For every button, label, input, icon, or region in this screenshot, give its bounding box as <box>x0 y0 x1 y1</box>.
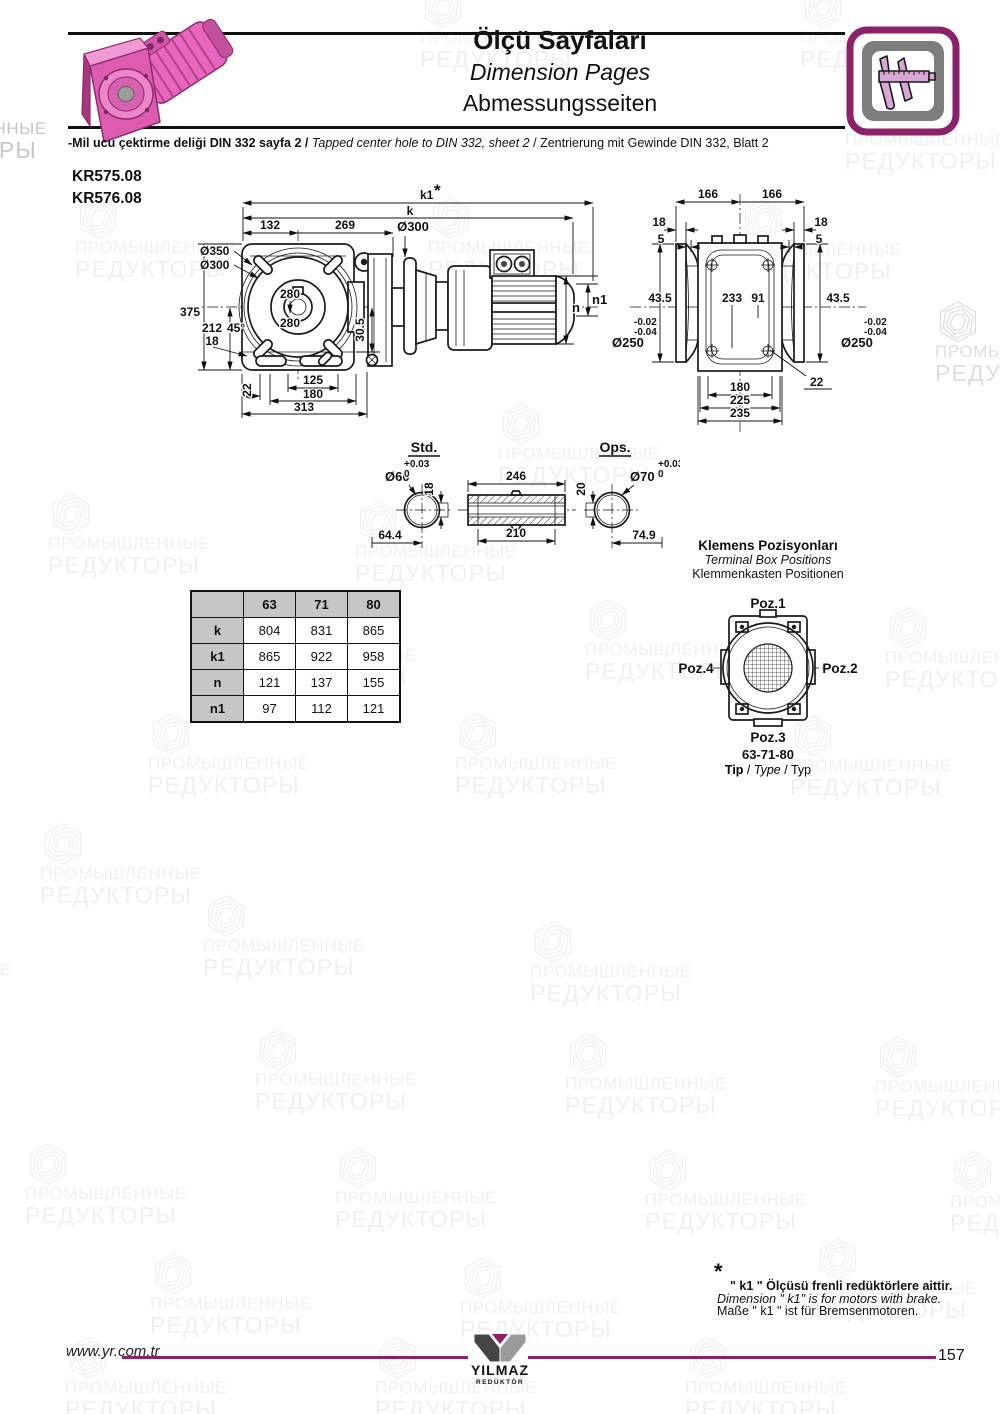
watermark: ПРОМЫШЛЕННЫЕРЕДУКТОРЫ <box>950 1150 1000 1236</box>
table-row: n1 97 112 121 <box>191 696 400 723</box>
watermark: ПРОМЫШЛЕННЫЕРЕДУКТОРЫ <box>885 606 1000 692</box>
label-poz2: Poz.2 <box>822 661 857 676</box>
dim-250-left: Ø250 <box>612 335 644 350</box>
table-corner-cell <box>191 591 244 618</box>
dim-n1: n1 <box>592 292 607 307</box>
watermark: ПРОМЫШЛЕННЫЕРЕДУКТОРЫ <box>455 712 617 798</box>
dim-125: 125 <box>303 373 323 387</box>
dim-225: 225 <box>730 393 750 407</box>
cell-k-80: 865 <box>348 618 401 644</box>
hexagon-swirl-icon <box>148 712 194 756</box>
footer-rule-left <box>122 1356 468 1359</box>
watermark: ПРОМЫШЛЕННЫЕРЕДУКТОРЫ <box>203 894 365 980</box>
terminal-title-german: Klemmenkasten Positionen <box>648 567 888 581</box>
cell-k1-63: 865 <box>244 644 296 670</box>
dim-22: 22 <box>240 383 254 397</box>
note-english: Tapped center hole to DIN 332, sheet 2 <box>312 136 530 150</box>
hexagon-swirl-icon <box>25 1142 71 1186</box>
title-german: Abmessungsseiten <box>360 88 760 118</box>
watermark: ПРОМЫШЛЕННЫЕРЕДУКТОРЫ <box>645 1148 807 1234</box>
watermark: ПРОМЫШЛЕННЫЕРЕДУКТОРЫ <box>0 77 47 163</box>
dim-132: 132 <box>260 218 280 232</box>
watermark: ПРОМЫШЛЕННЫЕРЕДУКТОРЫ <box>40 822 202 908</box>
label-poz1: Poz.1 <box>750 596 786 611</box>
hexagon-swirl-icon <box>885 606 931 650</box>
dim-250-right: Ø250 <box>841 335 873 350</box>
din-note: -Mil ucu çektirme deliği DIN 332 sayfa 2… <box>68 136 769 150</box>
watermark: ПРОМЫШЛЕННЫЕРЕДУКТОРЫ <box>25 1142 187 1228</box>
label-poz4: Poz.4 <box>678 661 714 676</box>
watermark: ПРОМЫШЛЕННЫЕРЕДУКТОРЫ <box>875 1035 1000 1121</box>
dim-210: 210 <box>506 526 526 540</box>
dim-280-top: 280 <box>280 287 300 301</box>
dim-180: 180 <box>303 387 323 401</box>
table-header-71: 71 <box>296 591 348 618</box>
table-row: n 121 137 155 <box>191 670 400 696</box>
dim-246: 246 <box>506 469 526 483</box>
dim-235: 235 <box>730 406 750 420</box>
dim-k1: k1 <box>420 188 434 202</box>
dim-233: 233 <box>722 291 742 305</box>
shaft-sections-drawing: Std. Ops. Ø60 +0.03 0 18 64.4 <box>350 430 680 555</box>
dimension-table: 63 71 80 k 804 831 865 k1 865 922 958 n … <box>190 590 401 723</box>
hexagon-swirl-icon <box>950 1150 996 1194</box>
table-header-row: 63 71 80 <box>191 591 400 618</box>
note-turkish: -Mil ucu çektirme deliği DIN 332 sayfa 2 <box>68 136 301 150</box>
dim-180-flange: 180 <box>730 380 750 394</box>
label-tip-line: Tip / Type / Typ <box>725 763 811 777</box>
hexagon-swirl-icon <box>203 894 249 938</box>
footer-rule-right <box>528 1356 936 1359</box>
yilmaz-logo: YILMAZ REDÜKTÖR <box>460 1330 540 1388</box>
dim-43-5-right: 43.5 <box>826 291 850 305</box>
footnote-turkish: " k1 " Ölçüsü frenli redüktörlere aittir… <box>730 1280 997 1293</box>
cell-n1-71: 112 <box>296 696 348 723</box>
watermark: ПРОМЫШЛЕННЫЕРЕДУКТОРЫ <box>148 712 310 798</box>
dim-64-4: 64.4 <box>378 528 402 542</box>
dim-5-right: 5 <box>816 232 823 246</box>
note-separator: / <box>305 136 312 150</box>
row-label-k: k <box>191 618 244 644</box>
hexagon-swirl-icon <box>875 1035 921 1079</box>
dim-300-top: Ø300 <box>397 219 429 234</box>
hexagon-swirl-icon <box>40 822 86 866</box>
watermark: ПРОМЫШЛЕННЫЕРЕДУКТОРЫ <box>150 1252 312 1338</box>
dim-5-left: 5 <box>658 232 665 246</box>
watermark: ПРОМЫШЛЕННЫЕРЕДУКТОРЫ <box>255 1028 417 1114</box>
note-german: Zentrierung mit Gewinde DIN 332, Blatt 2 <box>540 136 769 150</box>
dim-18-left: 18 <box>652 215 666 229</box>
hexagon-swirl-icon <box>800 0 846 30</box>
title-turkish: Ölçü Sayfaları <box>360 24 760 57</box>
dim-280-mid: 280 <box>280 316 300 330</box>
cell-n1-80: 121 <box>348 696 401 723</box>
dim-166-left: 166 <box>698 187 718 201</box>
dim-30-5: 30.5 <box>353 318 367 342</box>
gearmotor-photo <box>60 6 235 146</box>
footnote: * " k1 " Ölçüsü frenli redüktörlere aitt… <box>712 1266 997 1318</box>
terminal-box-drawing: Poz.1 Poz.2 Poz.4 Poz.3 63-71-80 Tip / T… <box>660 592 880 778</box>
dim-k: k <box>407 204 414 218</box>
hexagon-swirl-icon <box>455 712 501 756</box>
dim-22-flange: 22 <box>810 375 824 389</box>
page-title: Ölçü Sayfaları Dimension Pages Abmessung… <box>360 24 760 118</box>
hexagon-swirl-icon <box>255 1028 301 1072</box>
catalog-page: ПРОМЫШЛЕННЫЕРЕДУКТОРЫ ПРОМЫШЛЕННЫЕРЕДУКТ… <box>0 0 1000 1414</box>
terminal-box-titles: Klemens Pozisyonları Terminal Box Positi… <box>648 538 888 581</box>
dim-350: Ø350 <box>200 244 230 258</box>
dim-dia70: Ø70 <box>630 469 655 484</box>
dim-300-left: Ø300 <box>200 258 230 272</box>
dim-91: 91 <box>751 291 765 305</box>
hexagon-swirl-icon <box>585 598 631 642</box>
dim-18: 18 <box>205 334 219 348</box>
dim-166-right: 166 <box>762 187 782 201</box>
watermark: ПРОМЫШЛЕННЫЕРЕДУКТОРЫ <box>0 918 12 1004</box>
cell-n-63: 121 <box>244 670 296 696</box>
table-row: k1 865 922 958 <box>191 644 400 670</box>
dim-key-18: 18 <box>422 482 436 496</box>
page-number: 157 <box>938 1347 965 1365</box>
dim-45deg: 45° <box>227 321 245 335</box>
dim-key-20: 20 <box>574 482 588 496</box>
hexagon-swirl-icon <box>645 1148 691 1192</box>
cell-k1-71: 922 <box>296 644 348 670</box>
label-std: Std. <box>411 439 437 455</box>
dim-212: 212 <box>202 321 222 335</box>
dim-313: 313 <box>294 400 314 414</box>
hexagon-swirl-icon <box>335 1146 381 1190</box>
footnote-asterisk: * <box>714 1266 723 1279</box>
watermark: ПРОМЫШЛЕННЫЕРЕДУКТОРЫ <box>335 1146 497 1232</box>
label-sizes: 63-71-80 <box>742 747 794 762</box>
footnote-german: Maße " k1 " ist für Bremsenmotoren. <box>717 1305 997 1318</box>
label-ops: Ops. <box>599 439 630 455</box>
dim-18-right: 18 <box>814 215 828 229</box>
dim-tol-lo-std: 0 <box>404 469 410 480</box>
cell-n1-63: 97 <box>244 696 296 723</box>
row-label-n: n <box>191 670 244 696</box>
dim-n: n <box>572 300 580 315</box>
watermark: ПРОМЫШЛЕННЫЕРЕДУКТОРЫ <box>565 1032 727 1118</box>
row-label-k1: k1 <box>191 644 244 670</box>
table-header-80: 80 <box>348 591 401 618</box>
dim-375: 375 <box>180 305 200 319</box>
cell-k-63: 804 <box>244 618 296 644</box>
watermark: ПРОМЫШЛЕННЫЕРЕДУКТОРЫ <box>48 492 210 578</box>
cell-n-71: 137 <box>296 670 348 696</box>
terminal-title-english: Terminal Box Positions <box>648 553 888 567</box>
hexagon-swirl-icon <box>48 492 94 536</box>
hexagon-swirl-icon <box>565 1032 611 1076</box>
table-row: k 804 831 865 <box>191 618 400 644</box>
website-url: www.yr.com.tr <box>66 1343 160 1360</box>
dim-269: 269 <box>335 218 355 232</box>
cell-k-71: 831 <box>296 618 348 644</box>
label-poz3: Poz.3 <box>750 730 786 745</box>
front-view-drawing: k1 * k 132 269 Ø300 Ø350 Ø300 280 280 37… <box>60 170 1000 440</box>
watermark: ПРОМЫШЛЕННЫЕРЕДУКТОРЫ <box>685 1336 847 1414</box>
logo-text: YILMAZ <box>471 1362 529 1378</box>
logo-subtext: REDÜKTÖR <box>476 1377 524 1386</box>
row-label-n1: n1 <box>191 696 244 723</box>
dim-tol-lo-ops: 0 <box>658 469 664 480</box>
hexagon-swirl-icon <box>460 1256 506 1300</box>
table-header-63: 63 <box>244 591 296 618</box>
caliper-icon <box>846 26 960 136</box>
cell-k1-80: 958 <box>348 644 401 670</box>
cell-n-80: 155 <box>348 670 401 696</box>
hexagon-swirl-icon <box>530 920 576 964</box>
dim-k1-star: * <box>434 181 441 200</box>
terminal-title-turkish: Klemens Pozisyonları <box>648 538 888 553</box>
watermark: ПРОМЫШЛЕННЫЕРЕДУКТОРЫ <box>530 920 692 1006</box>
hexagon-swirl-icon <box>150 1252 196 1296</box>
dim-43-5-left: 43.5 <box>648 291 672 305</box>
title-english: Dimension Pages <box>360 57 760 88</box>
